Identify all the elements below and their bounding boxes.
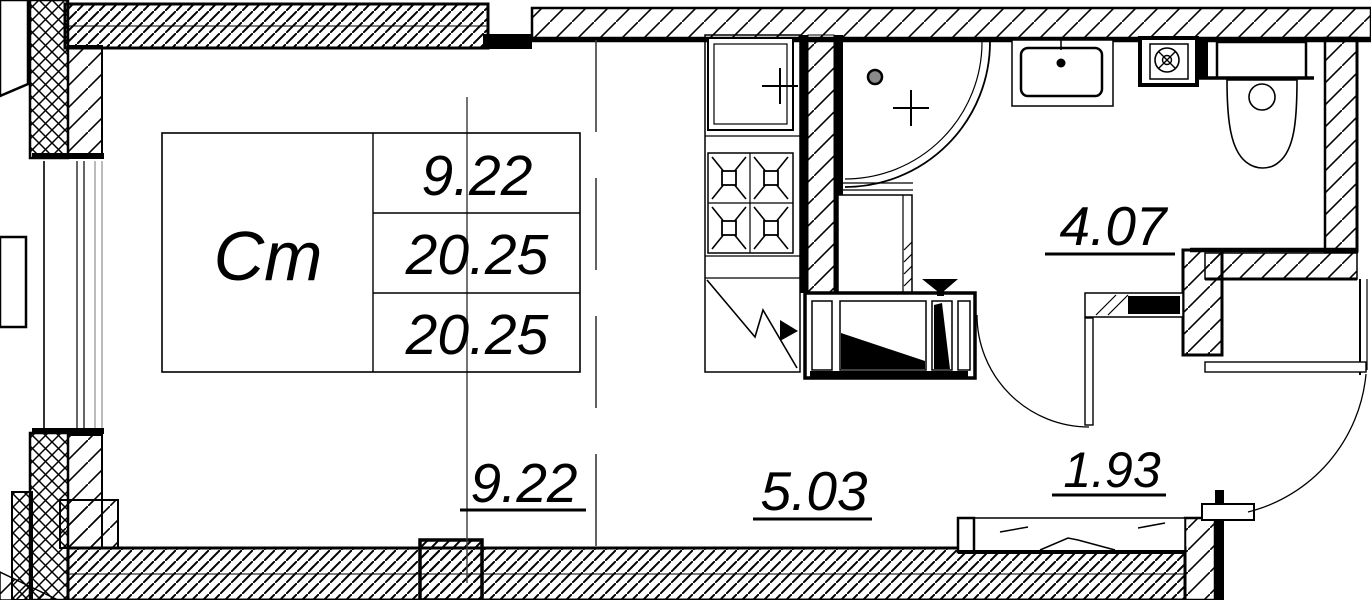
- cabinet-section: [805, 279, 975, 378]
- floor-plan-drawing: Ст 9.22 20.25 20.25: [0, 0, 1371, 600]
- counter-break-line: [707, 280, 798, 368]
- label-hall-area: 1.93: [1063, 442, 1161, 498]
- shower-cross-icon: [893, 90, 929, 126]
- entry-vestibule: [958, 518, 1185, 552]
- bathroom-door: [977, 315, 1093, 427]
- stamp-table: Ст 9.22 20.25 20.25: [162, 133, 580, 372]
- kitchen-fixtures: [705, 35, 800, 372]
- wall-hall-pier: [1183, 250, 1222, 355]
- break-arrow-icon: [780, 320, 798, 341]
- wall-bottom-pier-left: [60, 500, 118, 548]
- stamp-value-3: 20.25: [405, 303, 549, 367]
- shower-tray: [845, 42, 990, 187]
- wall-bottom-block: [420, 540, 482, 600]
- entry-threshold: [1202, 504, 1254, 520]
- wall-joint-stub: [483, 34, 532, 49]
- bathroom-door-swing: [977, 315, 1089, 427]
- label-kitchen-area: 5.03: [760, 460, 867, 522]
- wall-left-protrusion-mid: [0, 237, 26, 327]
- partition-kitchen-shower: [800, 35, 843, 293]
- sink-faucet-icon: [1057, 59, 1066, 68]
- toilet: [1198, 38, 1314, 168]
- walls: [0, 0, 1371, 600]
- entry-door: [1205, 362, 1366, 512]
- label-bathroom-area: 4.07: [1059, 195, 1168, 257]
- wall-left-protrusion-top: [0, 0, 28, 96]
- bathroom-door-leaf: [1085, 318, 1093, 425]
- wall-left-pier-top: [68, 46, 102, 156]
- shower-drain-icon: [868, 70, 882, 84]
- kitchen-sink: [708, 38, 798, 130]
- wall-niche-band: [1205, 253, 1357, 279]
- wall-left-column-top: [30, 0, 68, 158]
- label-living-area: 9.22: [470, 452, 577, 514]
- toilet-flush-icon: [1249, 84, 1275, 110]
- entry-door-leaf: [1205, 362, 1366, 372]
- window-left: [44, 161, 102, 432]
- stamp-value-1: 9.22: [422, 144, 533, 208]
- bathroom-fixtures: [1012, 38, 1314, 168]
- bathroom-sink: [1012, 40, 1113, 106]
- wall-bath-door-lintel: [1085, 293, 1183, 317]
- wall-right-bath: [1325, 38, 1357, 252]
- water-valve-box: [1140, 38, 1197, 85]
- stamp-type-label: Ст: [214, 217, 323, 295]
- shower-area: [838, 42, 990, 293]
- kitchen-stove: [708, 153, 793, 253]
- stamp-value-2: 20.25: [405, 223, 549, 287]
- wall-entry-pier: [1185, 518, 1215, 600]
- entry-door-swing: [1248, 374, 1366, 512]
- shower-screen: [838, 195, 912, 293]
- wall-top-main: [532, 8, 1371, 38]
- floor-plan: Ст 9.22 20.25 20.25: [0, 0, 1371, 600]
